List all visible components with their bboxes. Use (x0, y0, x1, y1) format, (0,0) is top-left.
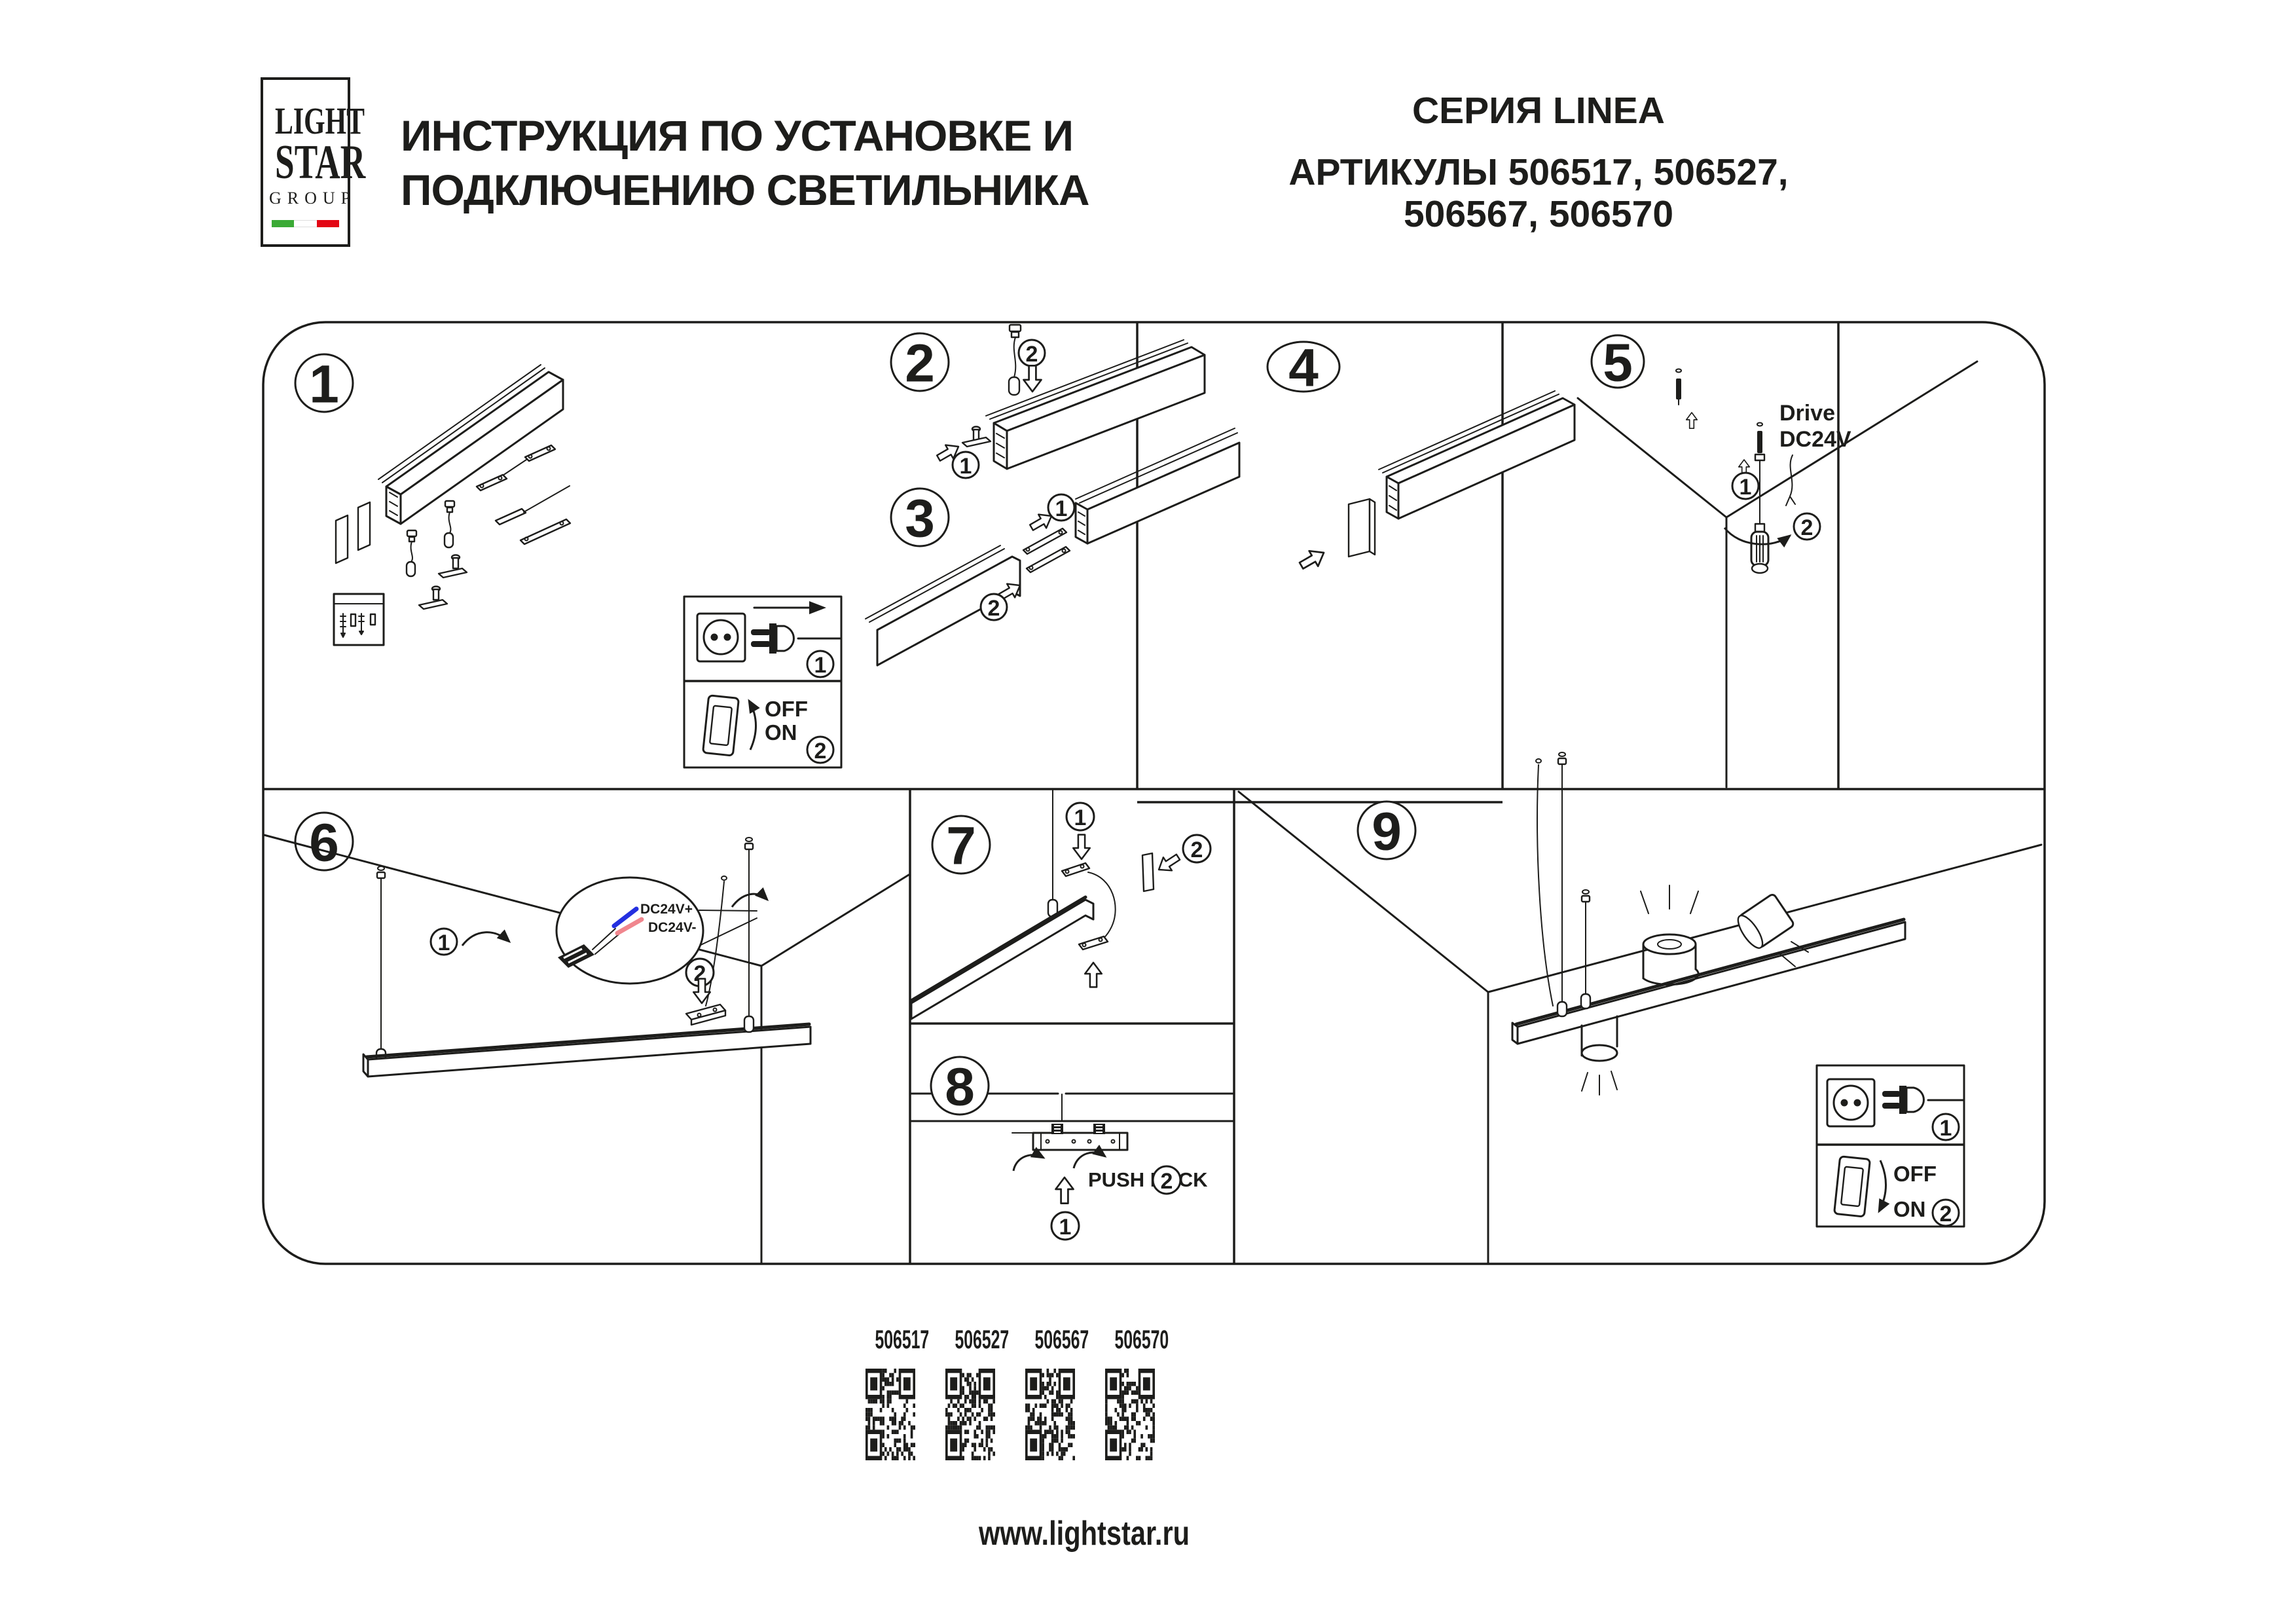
qr-code (866, 1369, 915, 1460)
power-inset: 1 OFF ON 2 (1817, 1065, 1964, 1227)
qr-code (1105, 1369, 1155, 1460)
qr-article-label: 506517 (875, 1327, 905, 1353)
uplight-spot (1641, 885, 1698, 985)
step-6-number: 6 (309, 813, 339, 873)
callout-1: 1 (960, 454, 972, 479)
title-line-2: ПОДКЛЮЧЕНИЮ СВЕТИЛЬНИКА (401, 163, 1089, 217)
callout-2: 2 (814, 739, 827, 764)
suspension-cable (1009, 325, 1021, 395)
cover-strip (358, 502, 370, 550)
right-suspension-cables (706, 838, 754, 1032)
callout-2: 2 (1801, 515, 1813, 540)
screw-anchor (1676, 369, 1681, 405)
light-bar-profile (1379, 391, 1575, 519)
step-5-number: 5 (1603, 333, 1633, 393)
rotate-arrow (1013, 1155, 1044, 1171)
light-bar (363, 1024, 811, 1077)
step-7-number: 7 (946, 817, 976, 876)
step-3-join-profiles: 3 1 2 (866, 428, 1239, 665)
switch-icon (703, 695, 739, 756)
callout-2: 2 (988, 596, 1000, 621)
step-2-suspension: 2 2 1 (891, 325, 1205, 479)
callout-1: 1 (1940, 1116, 1952, 1141)
switch-off-label: OFF (765, 697, 808, 721)
switch-off-label: OFF (1893, 1162, 1937, 1186)
switch-on-label: ON (1893, 1197, 1926, 1221)
step-3-number: 3 (905, 489, 935, 549)
screw-anchor (1755, 423, 1764, 517)
qr-article-label: 506570 (1114, 1327, 1145, 1353)
screws-packet (334, 594, 384, 645)
page-title: ИНСТРУКЦИЯ ПО УСТАНОВКЕ И ПОДКЛЮЧЕНИЮ СВ… (401, 109, 1089, 217)
light-rays (1641, 885, 1698, 913)
qr-code (1025, 1369, 1075, 1460)
tilted-spot (1734, 893, 1795, 951)
step-2-number: 2 (905, 334, 935, 394)
mounting-bracket (962, 427, 991, 447)
qr-item: 506567 (1025, 1327, 1075, 1460)
callout-1: 1 (1074, 805, 1087, 830)
joining-strips (1023, 528, 1070, 572)
track-bar (1512, 919, 1905, 1044)
callout-2: 2 (1940, 1202, 1952, 1227)
step-4-number: 4 (1288, 339, 1319, 398)
qr-code (945, 1369, 995, 1460)
wire-negative-label: DC24V- (648, 920, 697, 935)
diagram-grid (263, 322, 2045, 1264)
step-8-push-lock: 8 1 PUSH LOCK 2 (911, 1057, 1233, 1240)
step-4-end-cap: 4 (1267, 339, 1575, 574)
callout-1: 1 (1740, 475, 1752, 500)
series-block: СЕРИЯ LINEA АРТИКУЛЫ 506517, 506527, 506… (1277, 90, 1800, 235)
lightstar-logo: LIGHT STAR GROUP (261, 77, 350, 247)
logo-word-light: LIGHT (275, 102, 336, 140)
light-bar-profile (986, 340, 1205, 469)
track-bar (911, 897, 1093, 1019)
power-feed-connector (686, 1005, 725, 1025)
step-5-driver-wiring: 5 1 Drive DC24V (1578, 333, 1977, 788)
step-1-parts-overview: 1 (295, 354, 841, 767)
callout-1: 1 (438, 931, 450, 955)
blanking-plate (1142, 853, 1154, 891)
mounting-bracket (439, 555, 467, 578)
instruction-sheet: LIGHT STAR GROUP ИНСТРУКЦИЯ ПО УСТАНОВКЕ… (0, 0, 2296, 1624)
website-url: www.lightstar.ru (979, 1514, 1190, 1553)
suspension-cable (445, 501, 454, 547)
right-profile (1076, 428, 1239, 544)
push-lock-connector (1012, 1124, 1127, 1150)
suspension-cable (407, 530, 416, 576)
mounting-bracket (419, 587, 447, 610)
light-bar-profile (378, 365, 563, 524)
installation-diagram: 1 (262, 321, 2046, 1265)
ceiling-corner (1578, 361, 1977, 787)
switch-on-label: ON (765, 720, 797, 745)
drive-label: Drive (1779, 401, 1835, 426)
light-rays (1582, 1071, 1617, 1095)
qr-article-label: 506527 (955, 1327, 985, 1353)
step-6-hanging-wiring: 6 1 (264, 813, 909, 1263)
rotate-arrow (1074, 1153, 1105, 1168)
callout-2: 2 (1026, 342, 1038, 367)
step-7-feed-connector: 7 1 2 (911, 790, 1211, 1019)
series-name: СЕРИЯ LINEA (1277, 90, 1800, 132)
callout-1: 1 (1059, 1215, 1072, 1240)
step-9-final-assembly: 9 (1239, 752, 2041, 1263)
logo-word-group: GROUP (263, 190, 348, 207)
logo-word-star: STAR (275, 140, 336, 185)
switch-icon (1834, 1156, 1870, 1217)
callout-2: 2 (1161, 1169, 1173, 1194)
rotate-arrow (462, 932, 509, 946)
qr-code-row: 506517 506527 506567 506570 (866, 1327, 1155, 1460)
power-inset: 1 OFF ON 2 (684, 597, 841, 767)
articles-line-2: 506567, 506570 (1277, 194, 1800, 236)
qr-article-label: 506567 (1034, 1327, 1065, 1353)
qr-item: 506527 (945, 1327, 995, 1460)
push-lock-label: PUSH LOCK (1088, 1168, 1208, 1191)
suspension-cable (1048, 790, 1057, 917)
socket-icon (697, 614, 745, 661)
step-8-number: 8 (945, 1058, 975, 1117)
qr-item: 506517 (866, 1327, 915, 1460)
left-suspension-cable (376, 866, 386, 1065)
title-line-1: ИНСТРУКЦИЯ ПО УСТАНОВКЕ И (401, 109, 1089, 163)
qr-item: 506570 (1105, 1327, 1155, 1460)
cover-strip (336, 515, 348, 563)
callout-2: 2 (1191, 838, 1203, 862)
socket-icon (1827, 1079, 1874, 1126)
callout-1: 1 (814, 653, 827, 678)
downlight-spot (1582, 1016, 1617, 1095)
wiring-detail-balloon: DC24V+ DC24V- (556, 877, 757, 984)
italian-flag-icon (272, 220, 339, 227)
wire-positive-label: DC24V+ (640, 902, 693, 917)
callout-1: 1 (1055, 496, 1068, 521)
end-cap (1349, 499, 1375, 557)
step-9-number: 9 (1372, 802, 1402, 862)
drive-voltage-label: DC24V (1779, 427, 1851, 452)
step-1-number: 1 (309, 355, 339, 415)
articles-line-1: АРТИКУЛЫ 506517, 506527, (1277, 152, 1800, 194)
